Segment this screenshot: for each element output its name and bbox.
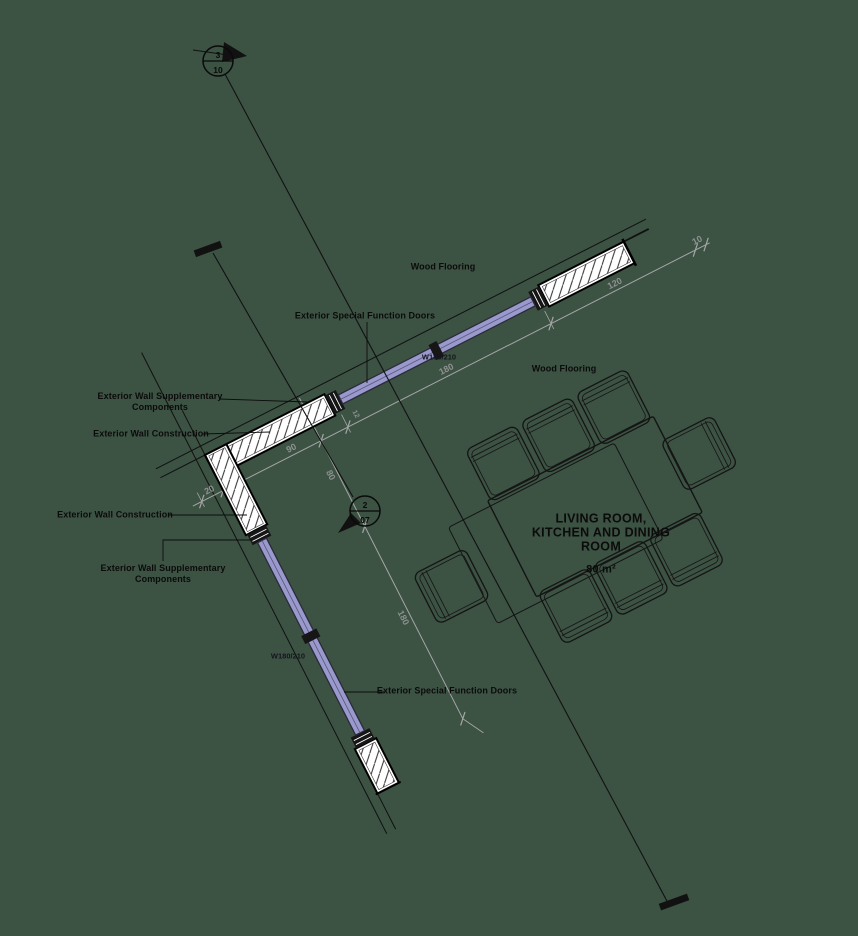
section-sheet-number: 10 (213, 65, 223, 75)
label-wood-flooring-right: Wood Flooring (532, 364, 597, 375)
label-exterior-doors-top: Exterior Special Function Doors (295, 311, 435, 322)
label-door-spec-top: W180/210 (422, 352, 456, 363)
plan-svg: 20 90 180 120 10 12 80 180 (0, 0, 858, 936)
label-door-spec-left: W180/210 (271, 651, 305, 662)
section-marker-icon: 2 07 (350, 496, 380, 526)
label-line: Components (98, 402, 223, 413)
page-background (0, 0, 858, 936)
label-exterior-doors-left: Exterior Special Function Doors (377, 686, 517, 697)
label-line: Exterior Wall Supplementary (101, 563, 226, 574)
label-wood-flooring-top: Wood Flooring (411, 262, 476, 273)
label-line: Components (101, 574, 226, 585)
label-wall-supplementary-top: Exterior Wall Supplementary Components (98, 391, 223, 413)
section-detail-number: 2 (363, 500, 368, 510)
room-area: 80 m² (532, 563, 670, 577)
section-marker-icon: 3 10 (203, 46, 233, 76)
room-title-line: LIVING ROOM, (532, 512, 670, 526)
floor-plan-drawing: 20 90 180 120 10 12 80 180 (0, 0, 858, 936)
section-detail-number: 3 (216, 50, 221, 60)
label-wall-construction-left: Exterior Wall Construction (57, 510, 173, 521)
label-line: Exterior Wall Supplementary (98, 391, 223, 402)
label-wall-supplementary-bottom: Exterior Wall Supplementary Components (101, 563, 226, 585)
section-sheet-number: 07 (360, 515, 370, 525)
room-title-line: ROOM (532, 540, 670, 554)
room-label: LIVING ROOM, KITCHEN AND DINING ROOM 80 … (532, 512, 670, 577)
room-title-line: KITCHEN AND DINING (532, 526, 670, 540)
label-wall-construction-top: Exterior Wall Construction (93, 429, 209, 440)
